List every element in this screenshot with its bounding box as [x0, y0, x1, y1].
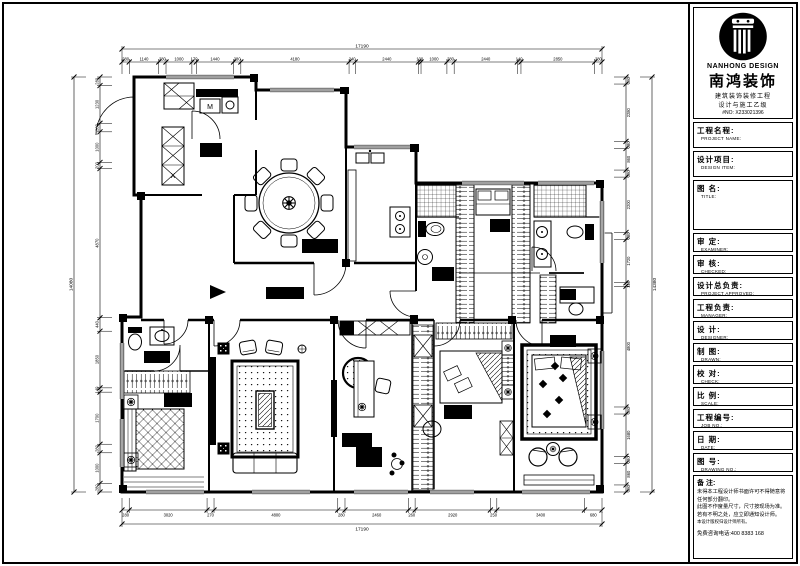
dim-top: 2801140280100017014402804180240244010010… [120, 57, 605, 75]
dim-label: 4180 [290, 57, 300, 62]
dim-label: 860 [626, 470, 631, 478]
dim-label: 280 [122, 57, 130, 62]
dim-label: 1850 [95, 354, 100, 364]
dim-label: 1000 [95, 463, 100, 473]
field-job-no: 工程编号: JOB NO.: [693, 409, 793, 428]
dim-label: 170 [191, 57, 199, 62]
dim-label: 280 [626, 76, 631, 84]
field-date: 日 期: DATE: [693, 431, 793, 450]
dim-label: 4870 [95, 238, 100, 248]
microwave-label: M [207, 104, 213, 111]
field-drawing-no: 图 号: DRAWING NO.: [693, 453, 793, 472]
dim-label: 280 [626, 232, 631, 240]
dim-label: 1000 [174, 57, 184, 62]
dim-label: 17190 [355, 527, 369, 533]
dim-bottom: 28030202704800280246026029202503400680 [120, 498, 605, 518]
dim-label: 100 [416, 57, 424, 62]
dim-label: 680 [590, 513, 598, 518]
dim-label: 1140 [140, 57, 150, 62]
study [340, 321, 433, 490]
dim-label: 280 [447, 57, 455, 62]
dim-label: 280 [122, 513, 130, 518]
dim-label: 1440 [210, 57, 220, 62]
top-right-rooms [456, 185, 594, 323]
nanhong-logo-icon [716, 11, 770, 62]
floor-plan-svg: 17190 2801140280100017014402804180240244… [4, 4, 688, 562]
dim-label: 280 [159, 57, 167, 62]
dim-label: 2920 [448, 513, 458, 518]
dim-label: 4800 [271, 513, 281, 518]
brand-sub1: 建筑装饰装修工程 [715, 91, 771, 100]
field-design-item: 设计项目: DESIGN ITEM: [693, 151, 793, 177]
dim-right-total: 14380 [640, 75, 658, 495]
brand-en: NANHONG DESIGN [707, 63, 779, 70]
dim-label: 140 [516, 57, 524, 62]
cabinet-letter: X [171, 173, 176, 180]
brand-cn: 南鸿装饰 [709, 70, 777, 91]
dim-label: 280 [626, 141, 631, 149]
dim-label: 280 [234, 57, 242, 62]
dim-label: 1700 [95, 413, 100, 423]
mid-kitchen-bath [348, 150, 456, 281]
dim-label: 1230 [95, 99, 100, 109]
dim-label: 280 [626, 169, 631, 177]
dim-label: 260 [408, 513, 416, 518]
dim-label: 280 [95, 77, 100, 85]
dim-label: 280 [95, 444, 100, 452]
dim-right: 2802280280860280220028017201404800280168… [614, 75, 631, 495]
dim-label: 860 [626, 155, 631, 163]
dim-label: 2440 [481, 57, 491, 62]
dim-label: 1000 [95, 142, 100, 152]
dim-left: 2801230280100020048704401850140170028010… [95, 75, 113, 495]
field-scale: 比 例: SCALE: [693, 387, 793, 406]
dim-label: 14080 [69, 278, 75, 292]
brand-cert-no: #NO: X233021396 [722, 110, 763, 116]
dim-label: 250 [490, 513, 498, 518]
dim-label: 280 [595, 57, 603, 62]
dim-label: 2200 [626, 199, 631, 209]
dim-label: 240 [349, 57, 357, 62]
dim-label: 140 [626, 280, 631, 288]
field-project-approved: 设计总负责: PROJECT APPROVED: [693, 277, 793, 296]
dim-label: 140 [95, 386, 100, 394]
dim-bottom-total: 17190 [120, 512, 605, 533]
field-examiner: 审 定: EXAMINER: [693, 233, 793, 252]
dim-label: 280 [338, 513, 346, 518]
drawing-sheet: 17190 2801140280100017014402804180240244… [2, 2, 798, 564]
brand-sub2: 设计与施工乙级 [718, 100, 767, 109]
living-room [210, 340, 337, 473]
bedroom-2 [423, 323, 514, 437]
dim-label: 280 [95, 484, 100, 492]
dim-label: 280 [626, 406, 631, 414]
dim-label: 2850 [553, 57, 563, 62]
dim-label: 2280 [626, 107, 631, 117]
dim-label: 1000 [429, 57, 439, 62]
bedroom-1 [124, 327, 204, 487]
field-designer: 设 计: DESIGNER: [693, 321, 793, 340]
master-bedroom [500, 335, 601, 485]
kitchen [162, 83, 238, 185]
brand-panel: NANHONG DESIGN 南鸿装饰 建筑装饰装修工程 设计与施工乙级 #NO… [693, 7, 793, 119]
dim-label: 200 [95, 161, 100, 169]
dim-label: 2440 [382, 57, 392, 62]
dim-label: 17190 [355, 44, 369, 50]
dim-label: 3020 [164, 513, 174, 518]
field-manager: 工程负责: MANAGER: [693, 299, 793, 318]
notes-panel: 备 注: 未得本工程设计师书面许可不得随意将任何部分翻印。 此图不作度量尺寸，尺… [693, 475, 793, 559]
field-checked: 审 核: CHECKED: [693, 255, 793, 274]
dim-left-total: 14080 [69, 75, 87, 495]
title-block: NANHONG DESIGN 南鸿装饰 建筑装饰装修工程 设计与施工乙级 #NO… [688, 4, 796, 562]
dim-label: 4800 [626, 341, 631, 351]
dim-label: 280 [626, 456, 631, 464]
field-drawn: 制 图: DRAWN: [693, 343, 793, 362]
field-project-name: 工程名程: PROJECT NAME: [693, 122, 793, 148]
dim-label: 3400 [536, 513, 546, 518]
dim-label: 1720 [626, 256, 631, 266]
field-check: 校 对: CHECK: [693, 365, 793, 384]
dim-label: 2460 [372, 513, 382, 518]
dim-label: 14380 [652, 278, 658, 292]
dim-label: 1680 [626, 430, 631, 440]
dining-room [245, 159, 338, 253]
floor-plan-area: 17190 2801140280100017014402804180240244… [4, 4, 688, 562]
field-title: 图 名: TITLE: [693, 180, 793, 230]
dim-label: 280 [626, 484, 631, 492]
dim-label: 440 [95, 320, 100, 328]
dim-label: 270 [207, 513, 215, 518]
